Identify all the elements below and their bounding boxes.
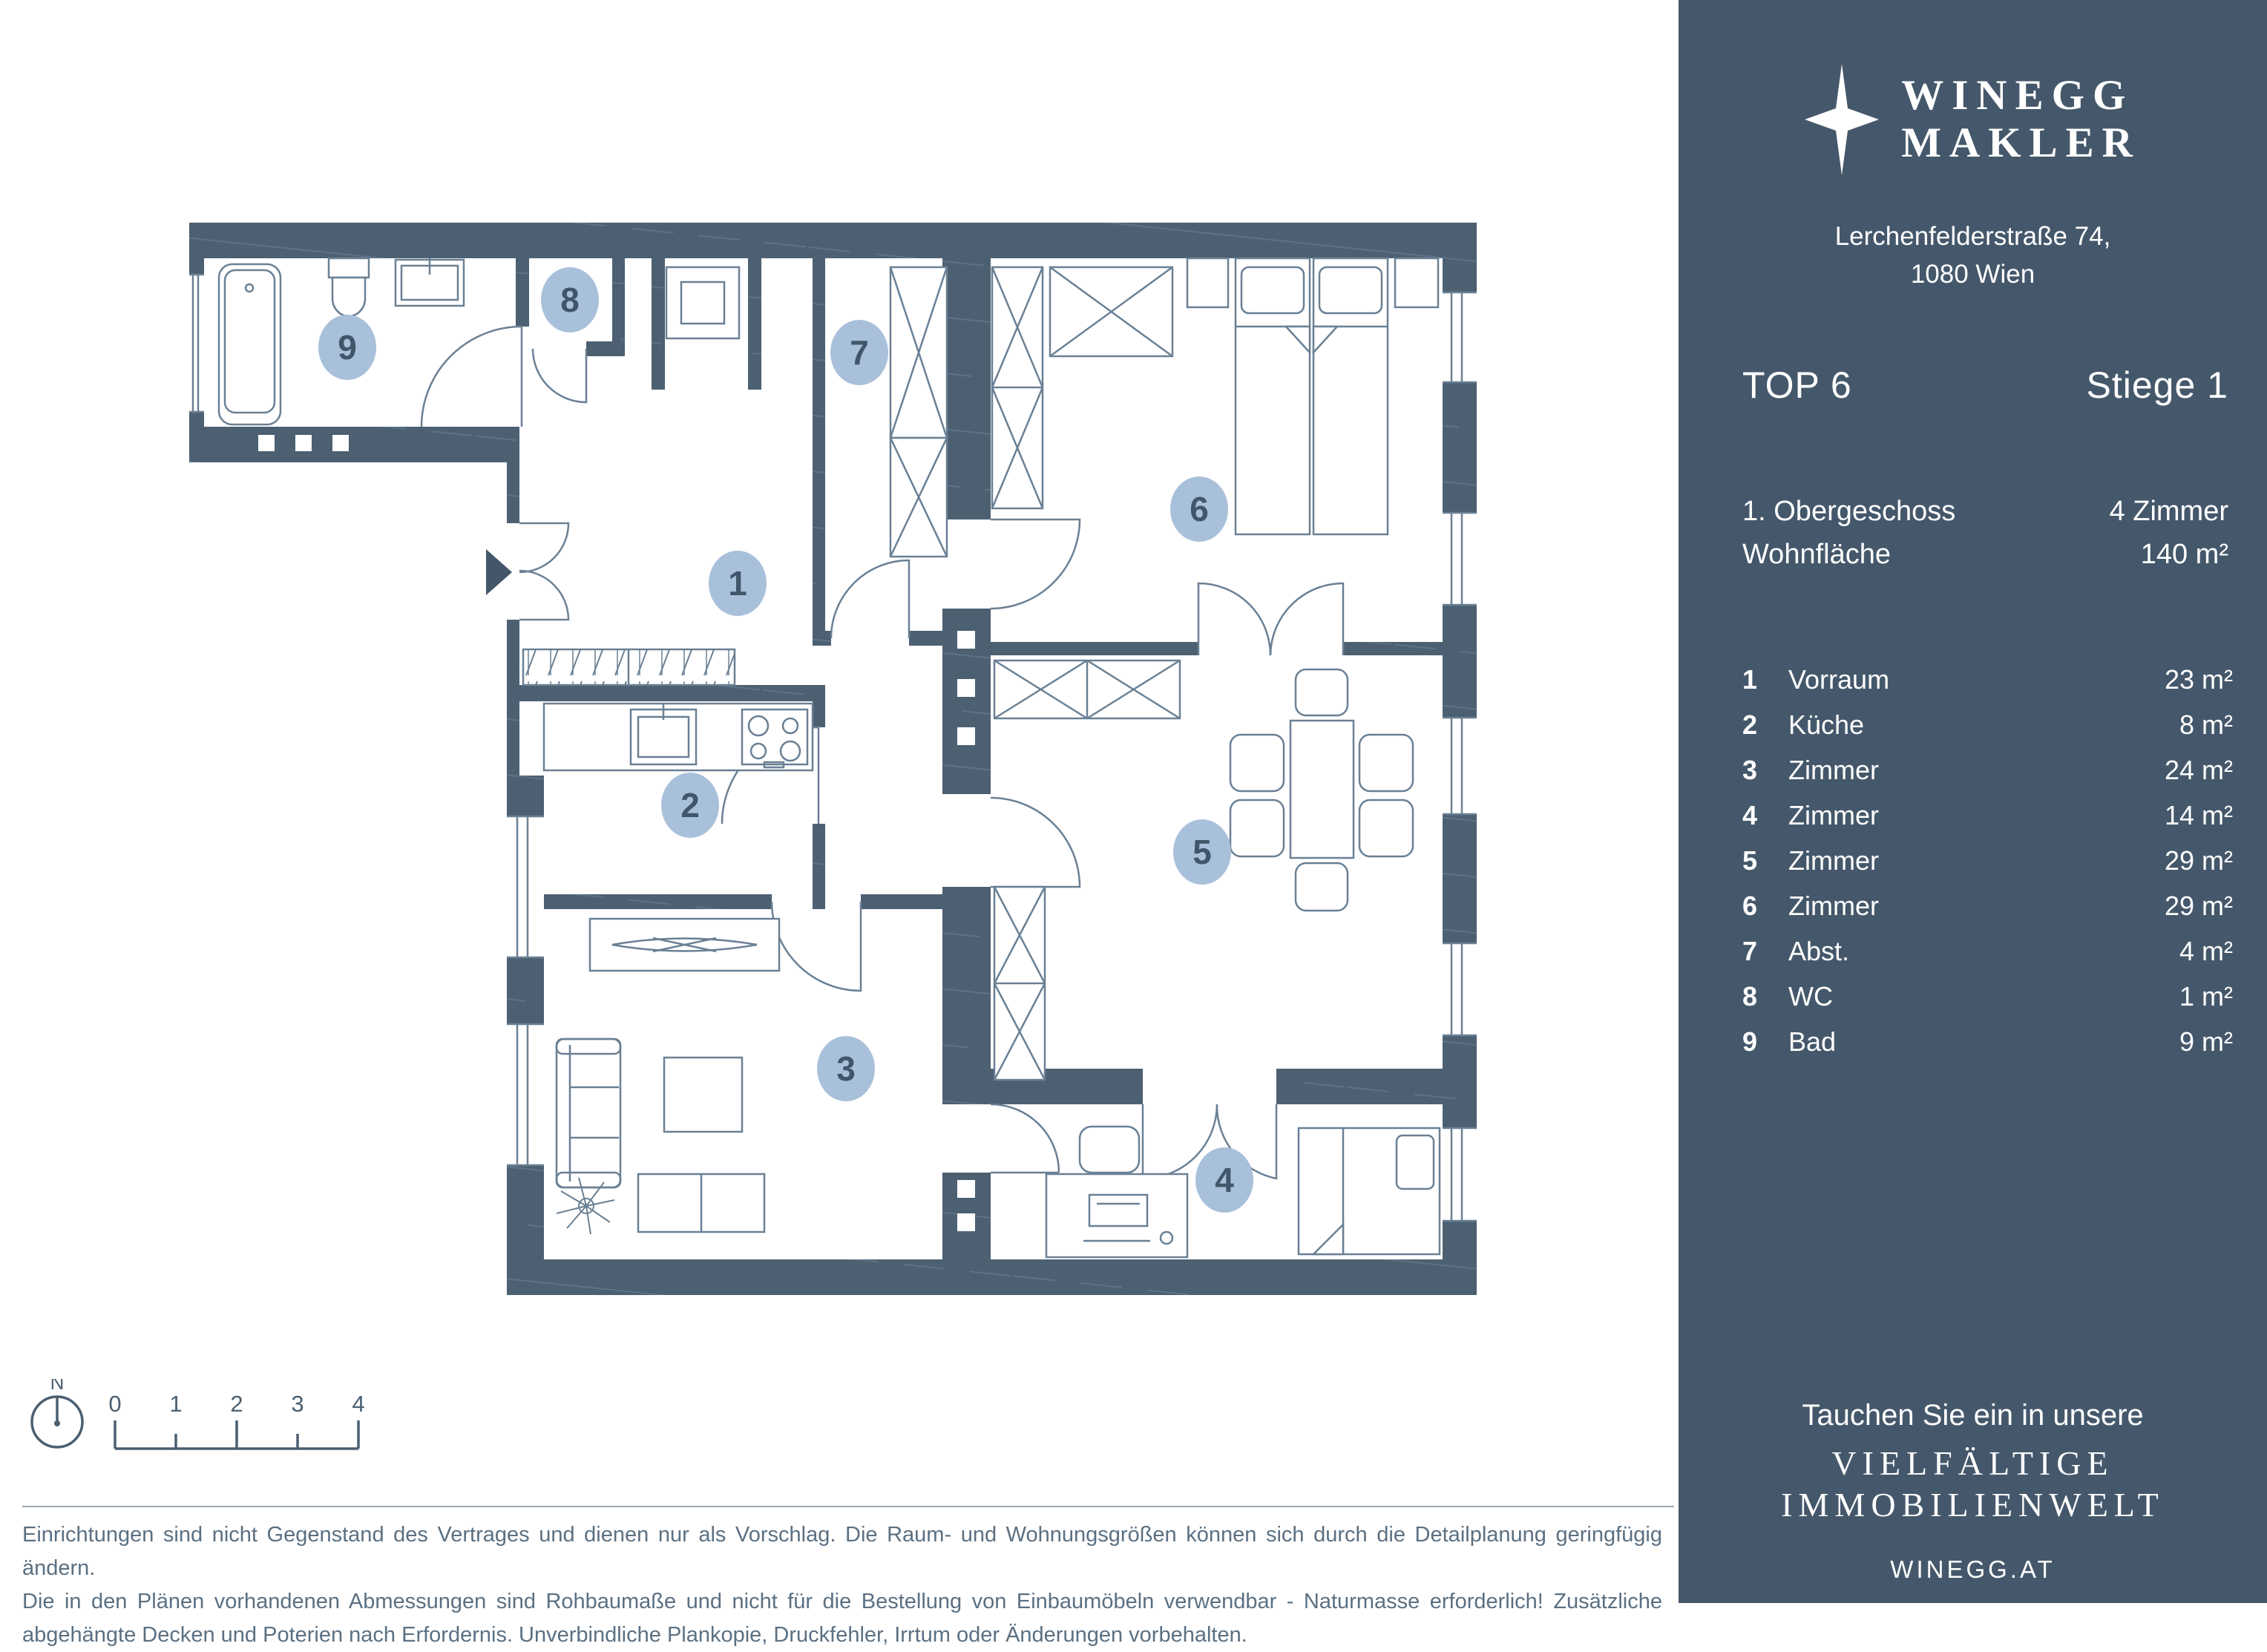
wall-5-4-b xyxy=(1276,1069,1443,1104)
room-row-label: Zimmer xyxy=(1788,800,2165,831)
info-rows: 1. Obergeschoss 4 Zimmer Wohnfläche 140 … xyxy=(1742,490,2228,577)
scale-ticks xyxy=(115,1420,358,1449)
room-row-area: 23 m² xyxy=(2165,664,2233,695)
room-row-area: 29 m² xyxy=(2165,845,2233,876)
sofa xyxy=(557,1039,620,1187)
hob xyxy=(742,709,807,767)
footer-tagline: Tauchen Sie ein in unsere xyxy=(1679,1399,2267,1432)
window-bath xyxy=(189,275,204,412)
room-row-nr: 7 xyxy=(1742,936,1788,967)
window-right-5 xyxy=(1443,1128,1477,1221)
room-marker-label: 2 xyxy=(680,786,700,825)
kitchen-counter xyxy=(544,704,813,770)
room-marker-3: 3 xyxy=(817,1036,875,1101)
room7-cupboards xyxy=(890,267,947,557)
room-row-nr: 9 xyxy=(1742,1026,1788,1058)
room6-chest xyxy=(1050,267,1172,356)
scale-labels: 0 1 2 3 4 xyxy=(108,1391,364,1417)
room-marker-6: 6 xyxy=(1170,476,1228,542)
dining-set xyxy=(1230,669,1413,911)
furniture xyxy=(219,258,1440,1257)
disclaimer-line-3: abgehängte Decken und Poterien nach Erfo… xyxy=(22,1619,1662,1652)
room-row-nr: 6 xyxy=(1742,891,1788,922)
room-row-6: 6 Zimmer 29 m² xyxy=(1742,891,2233,922)
window-right-4 xyxy=(1443,943,1477,1035)
disclaimer-line-2: Die in den Plänen vorhandenen Abmessunge… xyxy=(22,1585,1662,1619)
room-marker-label: 4 xyxy=(1215,1161,1234,1199)
footer-headline-2: IMMOBILIENWELT xyxy=(1679,1484,2267,1526)
room-row-label: Bad xyxy=(1788,1026,2179,1058)
disclaimer-line-1: Einrichtungen sind nicht Gegenstand des … xyxy=(22,1518,1662,1585)
scale-label-2: 2 xyxy=(230,1391,243,1417)
door-room3 xyxy=(772,902,861,991)
footer-website: WINEGG.AT xyxy=(1679,1556,2267,1584)
tiled-stove xyxy=(666,267,739,338)
wall-kitchen-east-b xyxy=(813,824,825,909)
wall-center-a xyxy=(942,258,991,519)
sidebar-footer: Tauchen Sie ein in unsere VIELFÄLTIGE IM… xyxy=(1679,1399,2267,1584)
room-row-label: Zimmer xyxy=(1788,891,2165,922)
door-room3-room4 xyxy=(991,1104,1059,1173)
wall-center-c xyxy=(942,887,991,1104)
entrance-arrow-icon xyxy=(486,549,512,595)
room-row-5: 5 Zimmer 29 m² xyxy=(1742,845,2233,876)
door-room6 xyxy=(991,519,1080,609)
brand-logo: WINEGG MAKLER xyxy=(1679,64,2267,175)
door-wc xyxy=(533,349,586,402)
bathtub xyxy=(219,264,280,425)
room-row-label: Abst. xyxy=(1788,936,2179,967)
wall-bath-bottom xyxy=(189,427,519,462)
room-row-nr: 2 xyxy=(1742,709,1788,741)
wall-wc-right xyxy=(612,258,625,356)
room-row-label: Küche xyxy=(1788,709,2179,741)
divider-line xyxy=(22,1506,1674,1507)
room-marker-label: 3 xyxy=(836,1049,856,1088)
wall-bottom xyxy=(507,1259,1477,1295)
twin-bed-2 xyxy=(1313,258,1388,534)
room-row-nr: 8 xyxy=(1742,981,1788,1012)
toilet xyxy=(329,258,369,316)
room5-wardrobe-west xyxy=(994,887,1045,1080)
disclaimer: Einrichtungen sind nicht Gegenstand des … xyxy=(22,1518,1662,1652)
stair-label: Stiege 1 xyxy=(2087,364,2228,407)
room-row-3: 3 Zimmer 24 m² xyxy=(1742,755,2233,786)
brand-line-2: MAKLER xyxy=(1901,119,2141,167)
room-row-7: 7 Abst. 4 m² xyxy=(1742,936,2233,967)
double-door-6-5-right xyxy=(1270,583,1343,655)
brand-line-1: WINEGG xyxy=(1901,72,2141,119)
room-marker-label: 8 xyxy=(560,281,580,319)
room-row-area: 4 m² xyxy=(2179,936,2233,967)
room-marker-label: 5 xyxy=(1192,833,1212,871)
room-marker-1: 1 xyxy=(709,551,767,616)
wall-hall-west-a xyxy=(507,462,519,523)
room-marker-5: 5 xyxy=(1173,819,1231,885)
room-row-area: 24 m² xyxy=(2165,755,2233,786)
sideboard xyxy=(638,1174,764,1232)
wall-stove-niche-left xyxy=(652,258,665,390)
room-row-label: Zimmer xyxy=(1788,755,2165,786)
brand-name: WINEGG MAKLER xyxy=(1901,72,2141,168)
single-bed xyxy=(1299,1128,1440,1254)
room-marker-label: 7 xyxy=(850,333,869,372)
door-room7 xyxy=(831,560,909,638)
room-marker-label: 1 xyxy=(728,564,747,603)
wall-room7-south-b xyxy=(909,631,942,646)
door-bath xyxy=(421,327,522,427)
room-row-1: 1 Vorraum 23 m² xyxy=(1742,664,2233,695)
room-table: 1 Vorraum 23 m² 2 Küche 8 m² 3 Zimmer 24… xyxy=(1742,664,2233,1058)
compass-star-icon xyxy=(1805,64,1879,175)
room-row-4: 4 Zimmer 14 m² xyxy=(1742,800,2233,831)
desk xyxy=(1046,1127,1187,1257)
wall-stove-niche-right xyxy=(748,258,761,390)
room-marker-label: 6 xyxy=(1190,490,1209,528)
room-row-area: 29 m² xyxy=(2165,891,2233,922)
scale-label-0: 0 xyxy=(108,1391,121,1417)
room-row-8: 8 WC 1 m² xyxy=(1742,981,2233,1012)
wall-room7-west xyxy=(813,258,825,646)
room-row-area: 14 m² xyxy=(2165,800,2233,831)
info-row-floor: 1. Obergeschoss 4 Zimmer xyxy=(1742,490,2228,534)
room6-wardrobe xyxy=(992,267,1043,508)
console-table xyxy=(590,919,779,971)
room-marker-2: 2 xyxy=(661,773,719,838)
rooms-count: 4 Zimmer xyxy=(2110,490,2228,534)
room5-wardrobe-top xyxy=(994,661,1180,718)
room-row-area: 9 m² xyxy=(2179,1026,2233,1058)
coat-rack xyxy=(523,649,735,685)
scale-label-1: 1 xyxy=(169,1391,182,1417)
room-row-label: Vorraum xyxy=(1788,664,2165,695)
wall-bath-wc xyxy=(516,258,529,327)
window-right-3 xyxy=(1443,718,1477,814)
footer-headline: VIELFÄLTIGE IMMOBILIENWELT xyxy=(1679,1443,2267,1526)
room-row-area: 1 m² xyxy=(2179,981,2233,1012)
room-marker-8: 8 xyxy=(541,267,599,332)
window-right-1 xyxy=(1443,292,1477,382)
bath-sink xyxy=(396,258,464,306)
wall-hall-south xyxy=(519,685,825,701)
sidebar: WINEGG MAKLER Lerchenfelderstraße 74, 10… xyxy=(1679,0,2267,1603)
double-door-6-5-left xyxy=(1198,583,1270,655)
room-row-area: 8 m² xyxy=(2179,709,2233,741)
room-row-nr: 3 xyxy=(1742,755,1788,786)
room-row-nr: 1 xyxy=(1742,664,1788,695)
room-row-nr: 5 xyxy=(1742,845,1788,876)
floor-label: 1. Obergeschoss xyxy=(1742,490,1955,534)
scale-label-3: 3 xyxy=(291,1391,304,1417)
north-label: N xyxy=(50,1379,65,1394)
wall-hall-west-b xyxy=(507,620,519,779)
door-room5 xyxy=(991,798,1080,887)
wall-kitchen-room3-a xyxy=(519,894,772,909)
window-left-1 xyxy=(507,816,544,957)
room-marker-9: 9 xyxy=(318,315,376,380)
room-row-9: 9 Bad 9 m² xyxy=(1742,1026,2233,1058)
unit-label: TOP 6 xyxy=(1742,364,1852,407)
room-row-nr: 4 xyxy=(1742,800,1788,831)
room-row-2: 2 Küche 8 m² xyxy=(1742,709,2233,741)
address-line-2: 1080 Wien xyxy=(1679,256,2267,294)
info-row-area: Wohnfläche 140 m² xyxy=(1742,533,2228,577)
scale-label-4: 4 xyxy=(352,1391,364,1417)
wall-kitchen-east-a xyxy=(813,701,825,727)
room-marker-4: 4 xyxy=(1195,1147,1253,1213)
wall-room7-south-a xyxy=(813,631,831,646)
window-left-2 xyxy=(507,1024,544,1165)
room-marker-7: 7 xyxy=(830,320,888,385)
room-row-label: WC xyxy=(1788,981,2179,1012)
north-compass-icon xyxy=(32,1397,82,1447)
living-area-label: Wohnfläche xyxy=(1742,533,1891,577)
twin-bed-1 xyxy=(1236,258,1310,534)
door-entrance-top xyxy=(519,523,568,572)
wall-6-5-a xyxy=(991,642,1198,655)
living-area-value: 140 m² xyxy=(2141,533,2228,577)
door-entrance-bottom xyxy=(519,571,568,620)
wall-top xyxy=(189,223,1477,258)
address-line-1: Lerchenfelderstraße 74, xyxy=(1679,218,2267,256)
nightstand-right xyxy=(1395,258,1438,307)
footer-headline-1: VIELFÄLTIGE xyxy=(1679,1443,2267,1484)
nightstand-left xyxy=(1187,258,1228,307)
room-row-label: Zimmer xyxy=(1788,845,2165,876)
window-right-2 xyxy=(1443,513,1477,605)
wall-kitchen-room3-b xyxy=(861,894,942,909)
property-address: Lerchenfelderstraße 74, 1080 Wien xyxy=(1679,218,2267,294)
unit-row: TOP 6 Stiege 1 xyxy=(1742,364,2228,407)
wall-6-5-b xyxy=(1343,642,1443,655)
floor-plan: 1 2 3 4 5 6 7 8 xyxy=(186,215,1492,1299)
room-marker-label: 9 xyxy=(338,328,357,367)
coffee-table xyxy=(664,1058,742,1132)
scale-bar: N 0 1 2 3 4 xyxy=(30,1379,416,1468)
